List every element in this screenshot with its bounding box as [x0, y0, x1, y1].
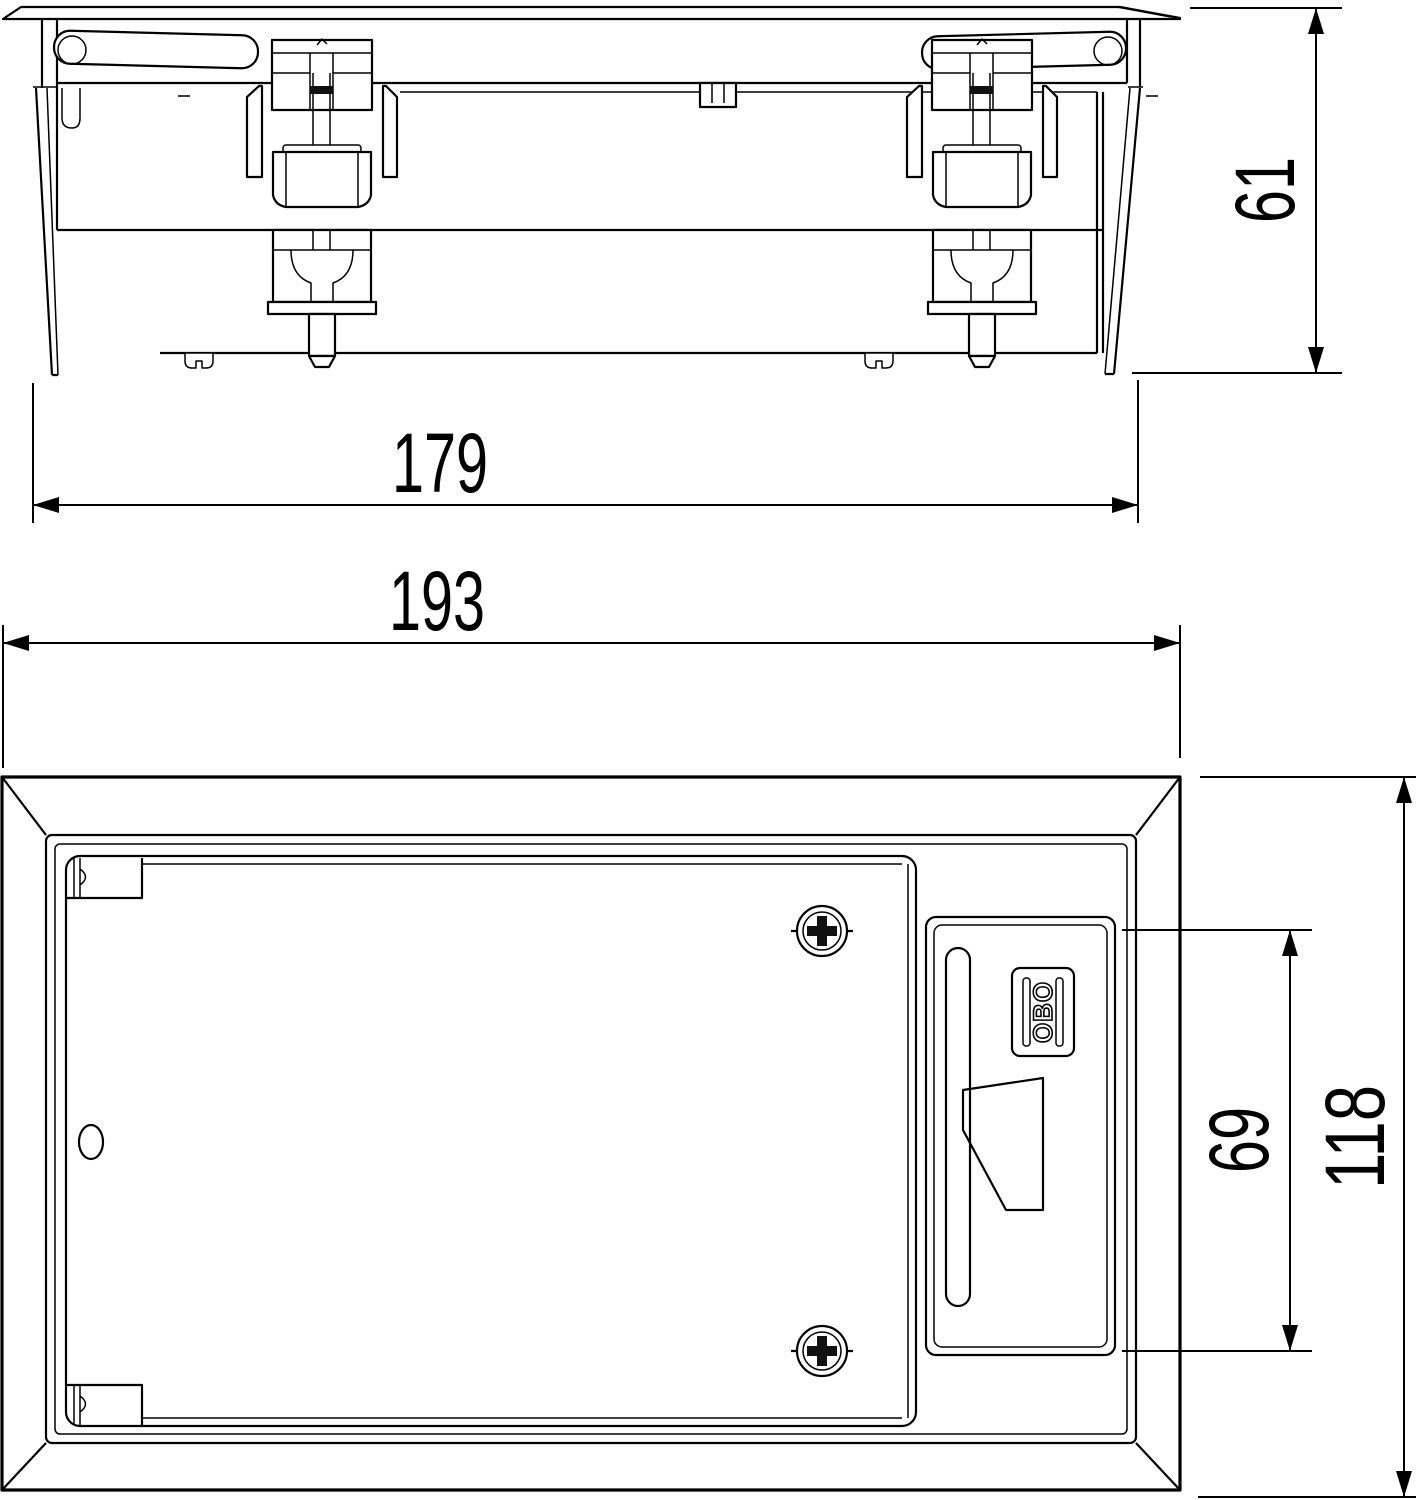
- elevation-left-hook: [62, 88, 80, 128]
- elevation-foot-right: [865, 353, 893, 368]
- dim-overall-depth-value: 118: [1308, 1085, 1402, 1189]
- dim-overall-width-value: 193: [389, 554, 485, 648]
- elevation-center-tab: [700, 83, 736, 107]
- dimension-179: 179: [33, 380, 1138, 523]
- latch-slot: [946, 948, 970, 1306]
- door-panel: [66, 856, 916, 1426]
- dim-latch-spacing-value: 69: [1192, 1107, 1286, 1173]
- obo-logo-plate: OBO: [1012, 968, 1074, 1056]
- elevation-view: [3, 7, 1180, 375]
- dimension-193: 193: [3, 554, 1180, 768]
- elevation-cover-flange: [3, 7, 1180, 19]
- technical-drawing: OBO 179 193 61 69 118: [0, 0, 1420, 1500]
- latch-lever: [963, 1078, 1043, 1210]
- dimension-61: 61: [1132, 8, 1342, 373]
- plan-outer-frame: [2, 777, 1180, 1490]
- frame-mitre-lines: [2, 777, 1180, 1490]
- plan-view: OBO: [2, 777, 1180, 1490]
- dim-body-width-value: 179: [392, 416, 488, 510]
- obo-logo-text: OBO: [1028, 981, 1058, 1043]
- screw-top: [791, 906, 853, 956]
- dim-height-value: 61: [1218, 157, 1312, 223]
- screw-bottom: [791, 1326, 853, 1376]
- finger-hole: [79, 1125, 103, 1159]
- clamp-assembly-left: [247, 39, 397, 367]
- clamp-assembly-right: [907, 39, 1057, 367]
- elevation-lever-left: [54, 30, 259, 68]
- dimension-69: 69: [1122, 930, 1312, 1351]
- elevation-foot-left: [185, 353, 213, 368]
- hinge-top: [74, 858, 86, 898]
- latch-recess: OBO: [926, 917, 1115, 1355]
- hinge-bottom: [74, 1385, 86, 1425]
